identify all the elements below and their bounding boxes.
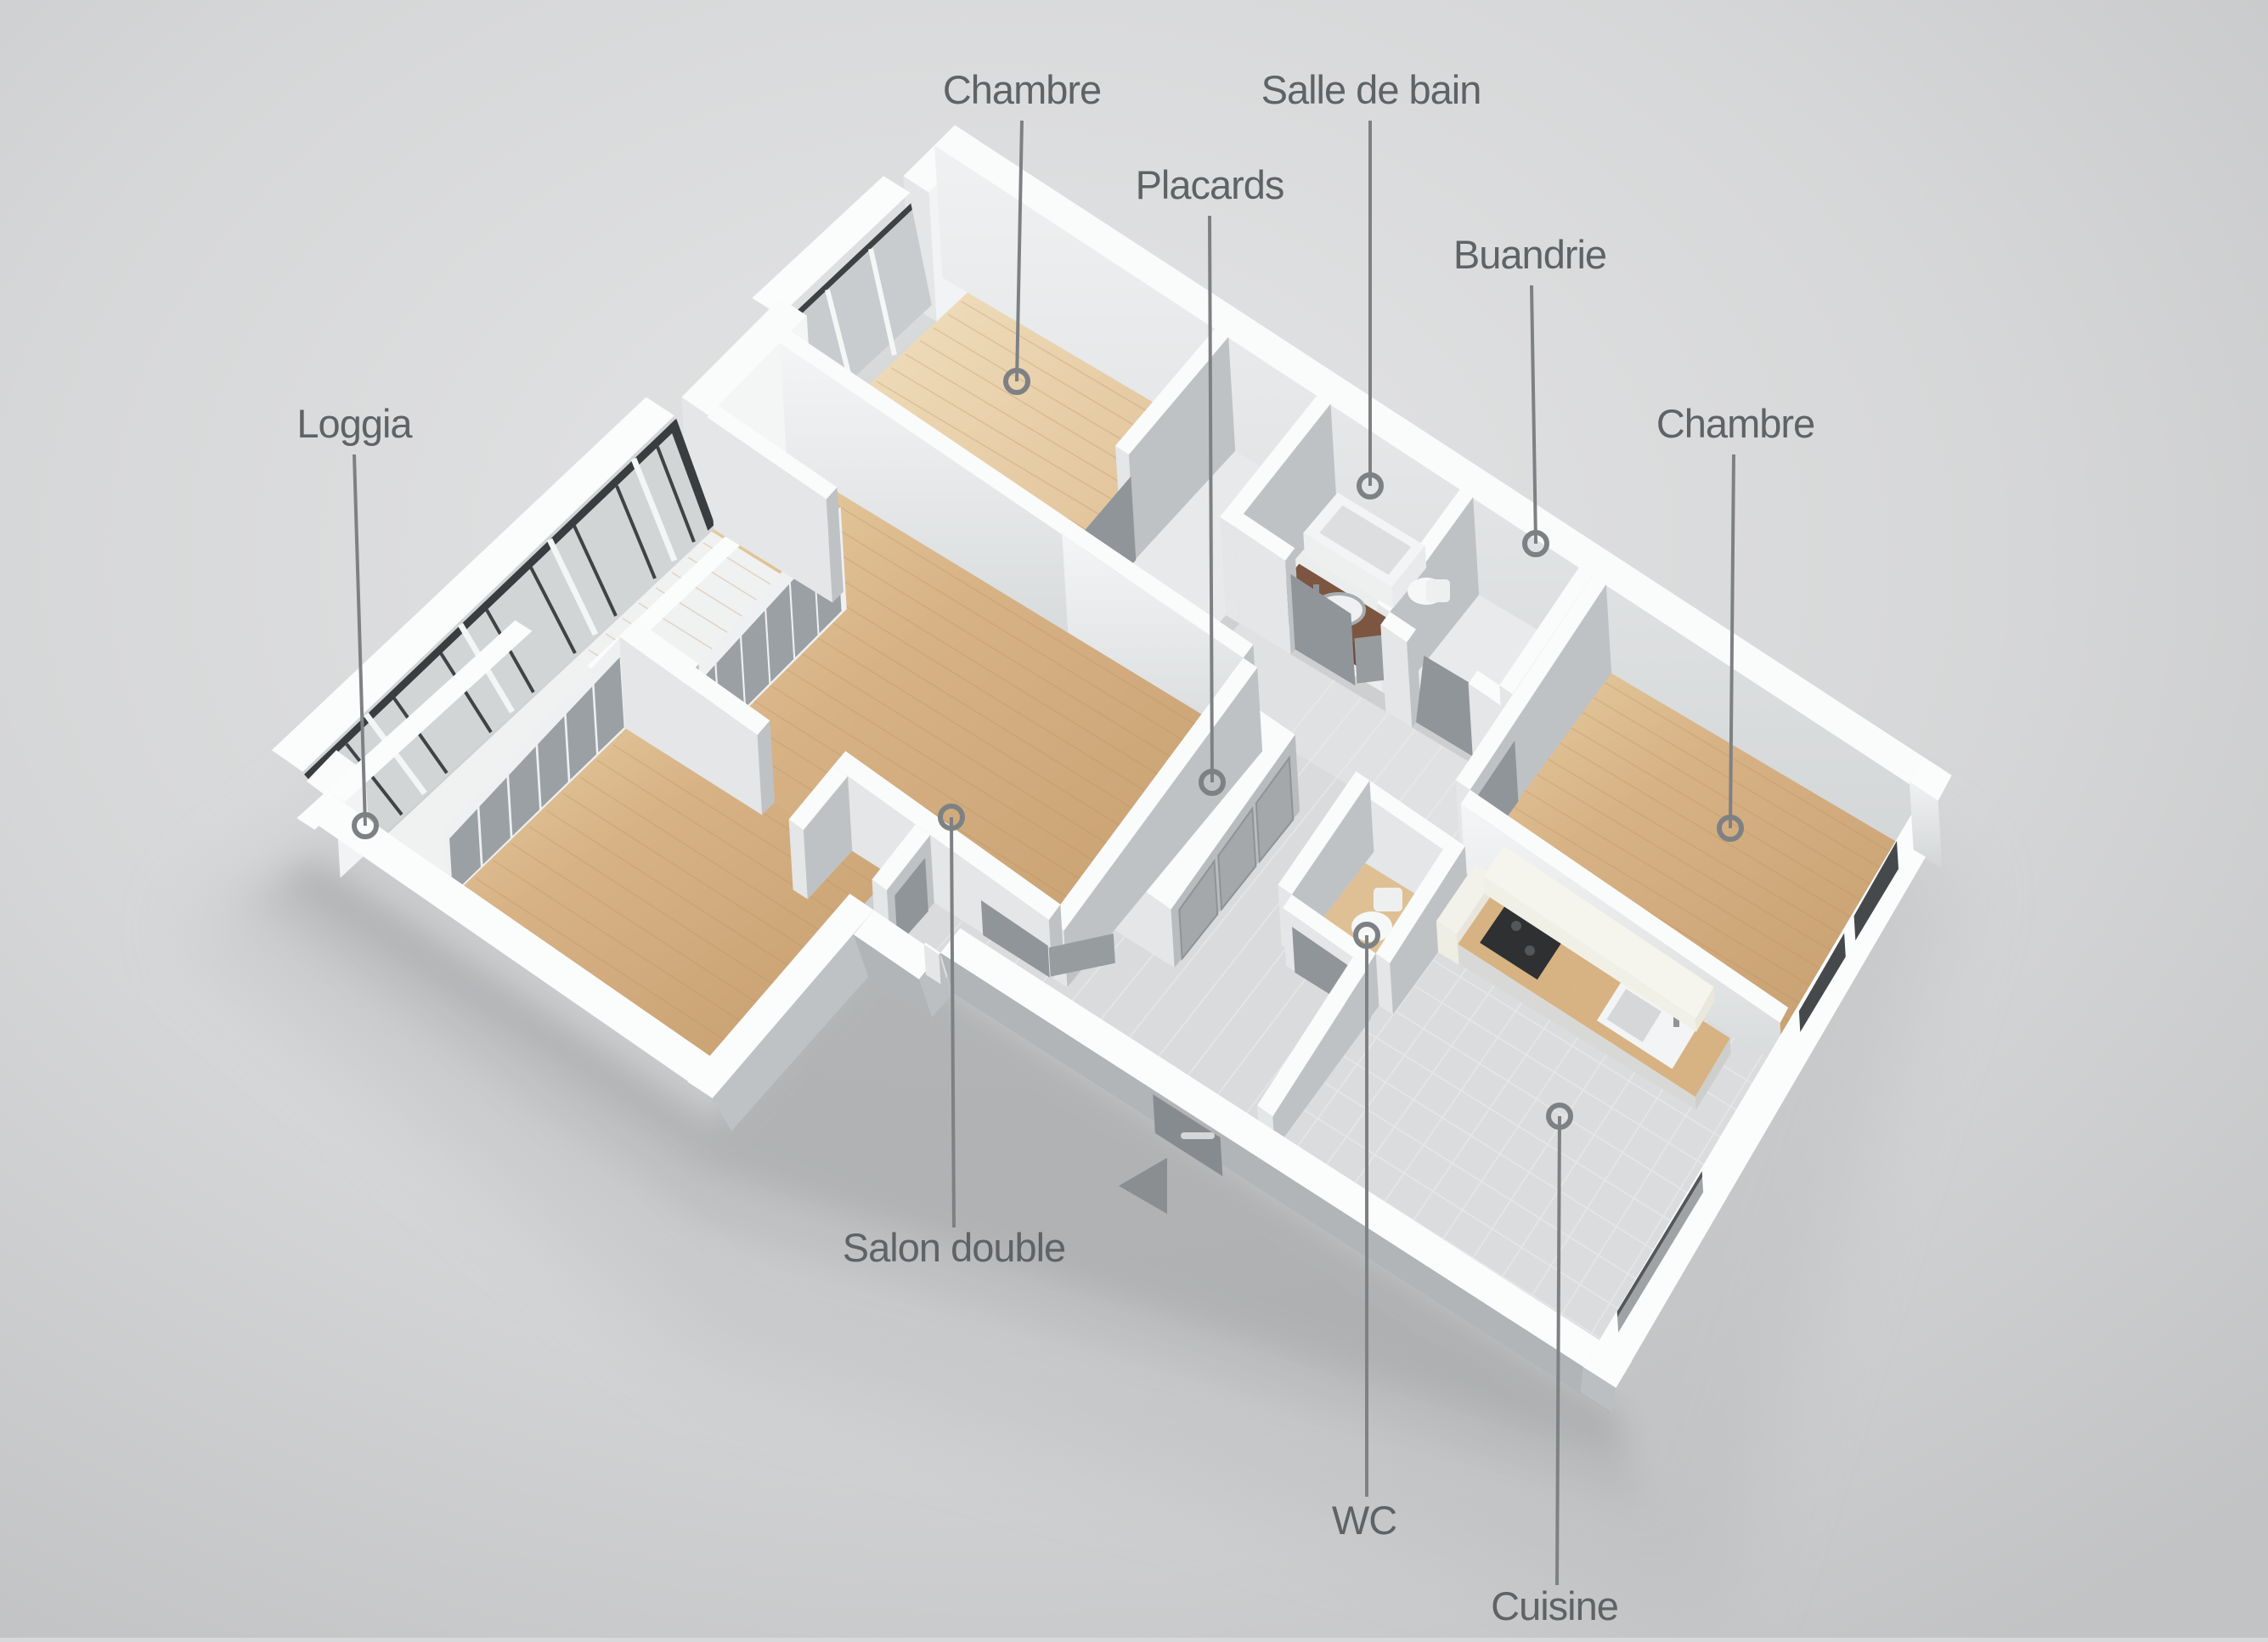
svg-text:WC: WC [1332, 1498, 1396, 1543]
svg-text:Chambre: Chambre [1656, 401, 1814, 446]
svg-text:Salle de bain: Salle de bain [1261, 67, 1481, 112]
svg-text:Placards: Placards [1136, 162, 1284, 207]
svg-text:Salon double: Salon double [843, 1225, 1065, 1270]
svg-text:Cuisine: Cuisine [1491, 1583, 1618, 1628]
svg-text:Loggia: Loggia [296, 401, 413, 446]
svg-text:Chambre: Chambre [943, 67, 1101, 112]
svg-text:Buandrie: Buandrie [1453, 232, 1606, 277]
